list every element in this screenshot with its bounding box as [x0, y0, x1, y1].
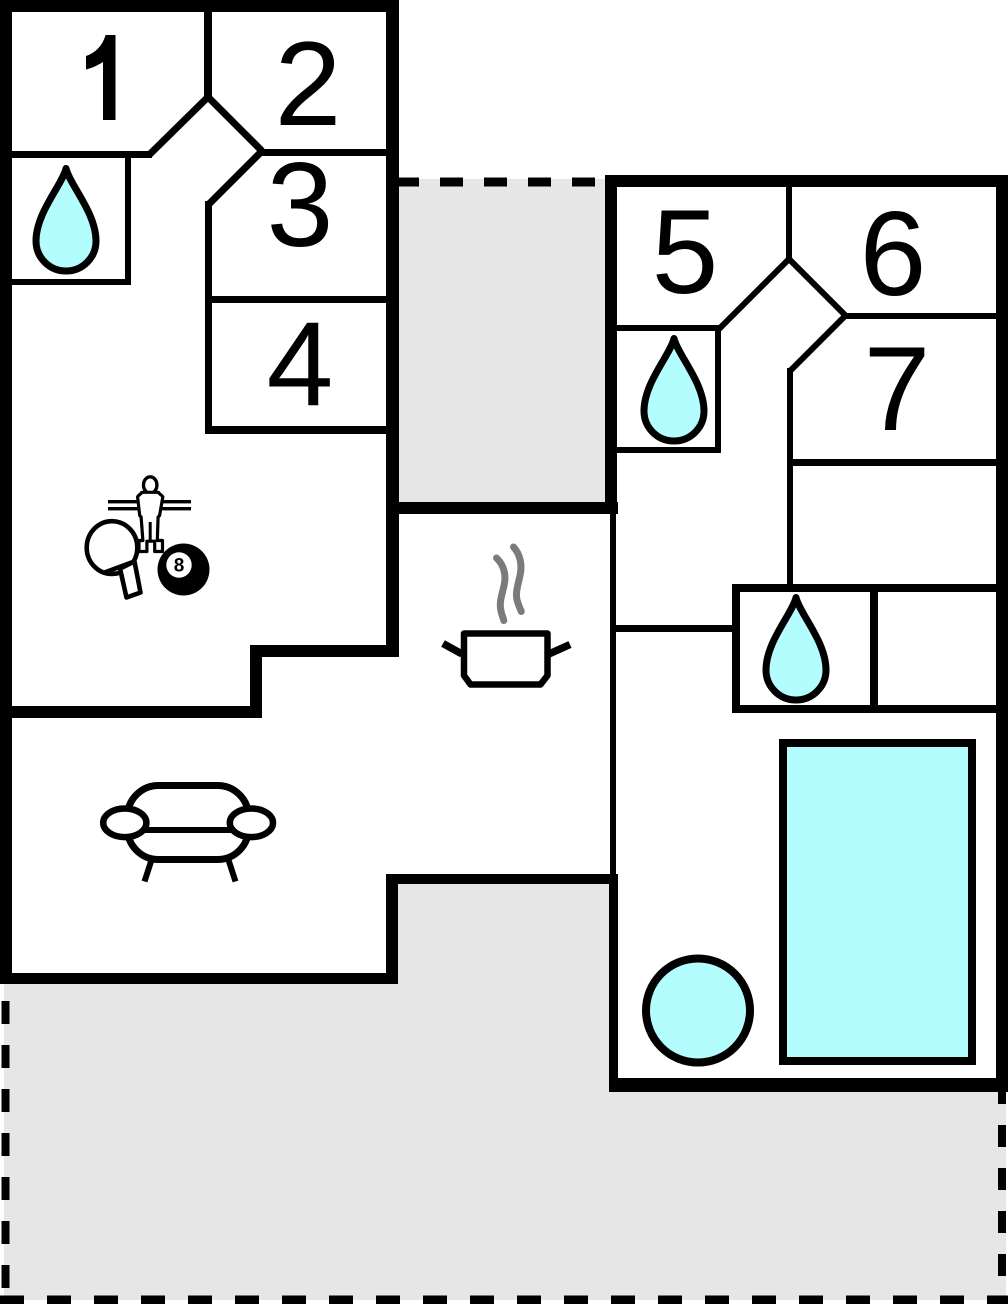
svg-text:5: 5 [652, 185, 719, 319]
svg-text:8: 8 [174, 556, 185, 577]
svg-text:7: 7 [864, 322, 931, 456]
svg-text:2: 2 [275, 17, 342, 151]
svg-text:4: 4 [267, 297, 334, 431]
svg-text:3: 3 [267, 138, 334, 272]
svg-text:6: 6 [860, 187, 927, 321]
